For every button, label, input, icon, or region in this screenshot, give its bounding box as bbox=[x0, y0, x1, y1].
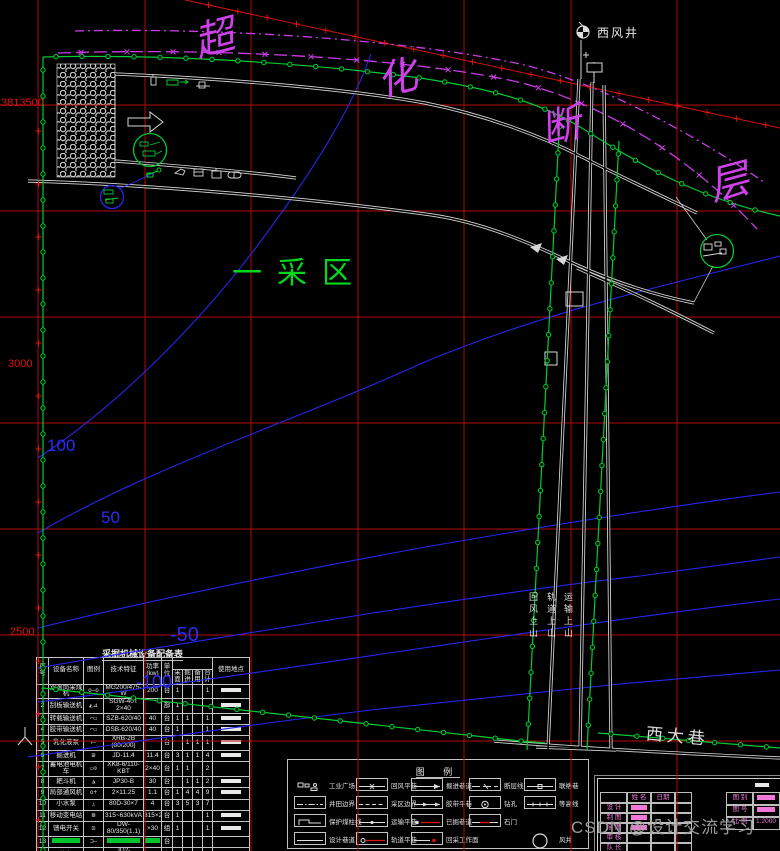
cad-mining-map-canvas: 一采区 西风井 西大巷 超化断层 381350030002500 10050-5… bbox=[0, 0, 780, 851]
equipment-markers bbox=[101, 134, 734, 268]
legend-sample-line-dot bbox=[357, 817, 387, 828]
legend-item-label: 钻孔 bbox=[504, 798, 517, 808]
equipment-row: 12馈电开关⊡ DW-80/350(1.1)×30组 11 bbox=[37, 822, 250, 837]
flow-arrow bbox=[128, 112, 163, 132]
equipment-row: 5乳化液泵⟝ XRB-2B (80/200)台 111 bbox=[37, 736, 250, 751]
legend-sample-red-seg bbox=[470, 817, 500, 828]
fault-name-char: 化 bbox=[369, 42, 423, 108]
legend-sample-dashdot bbox=[295, 799, 325, 810]
legend-sample-line-dash bbox=[470, 781, 500, 792]
contour-label: -50 bbox=[170, 624, 199, 647]
tb-blank bbox=[674, 842, 692, 851]
legend-sample-line-arrow bbox=[412, 781, 442, 792]
tb-role-label: 队 长 bbox=[600, 842, 628, 851]
tb-meta-value: 1:2000 bbox=[752, 816, 780, 830]
legend-item-label: 断层线 bbox=[504, 780, 524, 790]
chamber-stub bbox=[545, 352, 557, 365]
region-label: 一采区 bbox=[232, 248, 367, 292]
green-surface-symbols bbox=[146, 80, 188, 177]
contour-label: 100 bbox=[47, 436, 75, 456]
coordinate-label: 3813500 bbox=[1, 97, 44, 109]
main-roadway-label: 西大巷 bbox=[645, 719, 710, 749]
equipment-row: 10小水泵♙ 80D-30×74台 3537 bbox=[37, 799, 250, 810]
tb-date-value bbox=[650, 842, 676, 851]
equipment-row: 2刮板输送机◭⊿ SGW-40T 2×40部 1 bbox=[37, 699, 250, 714]
legend-sample-bracket bbox=[295, 817, 325, 828]
col-header: 设备名称 bbox=[49, 658, 84, 685]
red-boundary-line bbox=[185, 0, 780, 128]
contour-label: 50 bbox=[101, 508, 120, 528]
legend-sample-dot-red2 bbox=[412, 835, 442, 846]
legend-sample-solid bbox=[295, 835, 325, 846]
legend-item-label: 回采工作面 bbox=[446, 834, 479, 844]
qty-subheader: 备用 bbox=[193, 670, 203, 685]
wye-symbol bbox=[18, 727, 32, 745]
equipment-row: 11移动变电站⊠ 315~630kVA315×2台 11 bbox=[37, 810, 250, 821]
legend-sample-line-mid bbox=[525, 781, 555, 792]
legend-item-label: 石门 bbox=[504, 816, 517, 826]
coordinate-label: 3000 bbox=[8, 358, 32, 370]
leader-lines bbox=[676, 197, 713, 302]
junction-arrow bbox=[530, 243, 542, 253]
incline-label: 轨道上山 bbox=[545, 592, 558, 640]
qty-group-header bbox=[173, 658, 213, 670]
legend-sample-line-x bbox=[357, 781, 387, 792]
qty-subheader: 采面 bbox=[173, 670, 183, 685]
legend-sample-icons bbox=[295, 781, 325, 792]
equipment-row: 9局部通风机o+ 2×11.251.1台 1449 bbox=[37, 788, 250, 799]
legend-item-label: 工业广场 bbox=[329, 780, 355, 790]
wind-shaft-symbol bbox=[577, 22, 589, 38]
equipment-row: 14绞车⟓ JD2-TYD/1.25台 11 bbox=[37, 848, 250, 851]
col-header: 序号 bbox=[37, 658, 49, 685]
legend-sample-dot-red bbox=[412, 817, 442, 828]
legend-panel: 图 例 工业广场 井田边界 保护煤柱线 设计巷道 回风平巷 采区边界 运输平巷 … bbox=[287, 759, 589, 849]
blue-leader bbox=[119, 174, 152, 189]
fault-name-char: 断 bbox=[533, 90, 587, 156]
legend-item-label: 设计巷道 bbox=[329, 834, 355, 844]
tb-name-value bbox=[626, 842, 652, 851]
qty-subheader: 掘进 bbox=[183, 670, 193, 685]
contour-label: -100 bbox=[136, 672, 172, 693]
protected-pillar-hatch bbox=[57, 64, 115, 177]
equipment-row: 13⊐— 台 bbox=[37, 836, 250, 847]
fault-name-char: 层 bbox=[701, 146, 755, 212]
equipment-circle-right bbox=[701, 235, 734, 268]
equipment-circle-left bbox=[134, 134, 167, 167]
legend-sample-line-arrow2 bbox=[412, 799, 442, 810]
coordinate-label: 2500 bbox=[10, 626, 34, 638]
col-header: 图例 bbox=[84, 658, 104, 685]
col-header: 使用地点 bbox=[213, 658, 250, 685]
cross-tick bbox=[583, 52, 589, 58]
legend-item-label: 联络巷 bbox=[559, 780, 579, 790]
shaft-building bbox=[587, 63, 602, 72]
legend-item-label: 等高线 bbox=[559, 798, 579, 808]
incline-label: 运输上山 bbox=[562, 592, 575, 640]
legend-sample-big-circle bbox=[525, 833, 555, 851]
fault-line-upper bbox=[75, 30, 764, 182]
junction-arrow bbox=[556, 255, 568, 265]
qty-subheader: 合计 bbox=[203, 670, 213, 685]
equipment-row: 4胶带输送机⌐▭ DSB-620/4040台 11 bbox=[37, 725, 250, 736]
equipment-row: 6掘进机⊞ JD-11.411.4台 3114 bbox=[37, 751, 250, 762]
equipment-circle-blue bbox=[101, 186, 124, 209]
incline-label: 回风上山 bbox=[527, 592, 540, 640]
wind-shaft-label: 西风井 bbox=[597, 24, 639, 41]
surface-symbols bbox=[151, 74, 241, 178]
legend-sample-circle-red bbox=[357, 835, 387, 846]
bypass-loop bbox=[566, 292, 583, 306]
equipment-row: 7蓄电池电机车▭⊙ XK8-6/110-KBT2×40台 112 bbox=[37, 762, 250, 777]
legend-sample-dashed bbox=[357, 799, 387, 810]
legend-item-label: 井田边界 bbox=[329, 798, 355, 808]
tb-scale-bar bbox=[755, 783, 769, 787]
equipment-row: 3转载输送机⌐▭ SZB-620/4040台 111 bbox=[37, 713, 250, 724]
legend-sample-circle-dot bbox=[470, 799, 500, 810]
legend-sample-line-tick bbox=[525, 799, 555, 810]
watermark: CSDN @设计交流学习 bbox=[571, 813, 755, 838]
equipment-row: 8耙斗机◮ JP30-B30台 112 bbox=[37, 777, 250, 788]
fault-name-char: 超 bbox=[186, 2, 240, 68]
